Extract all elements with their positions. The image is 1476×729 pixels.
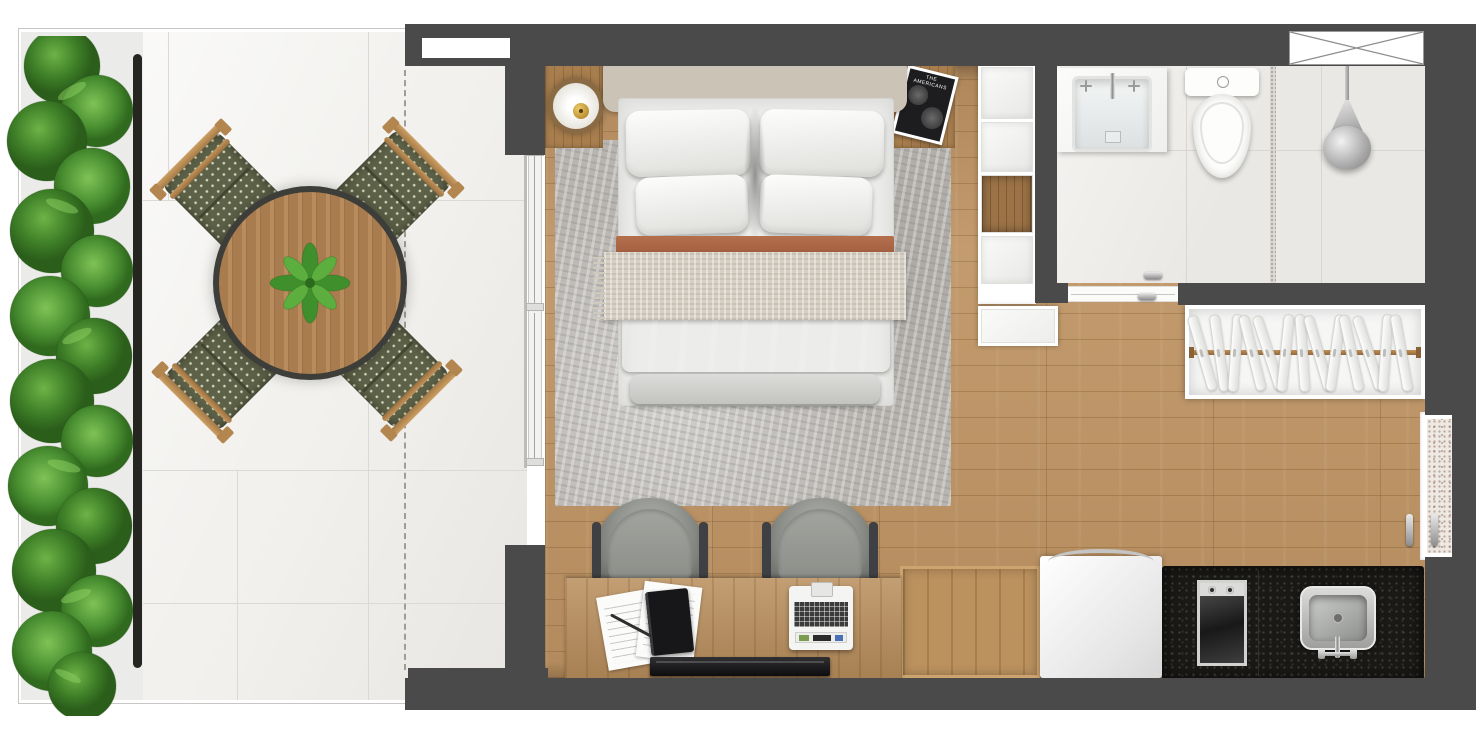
refrigerator bbox=[1040, 556, 1162, 678]
keyboard-latch bbox=[811, 582, 833, 597]
lamp-finial bbox=[579, 109, 583, 113]
bathroom-bottom-wall bbox=[1178, 283, 1425, 305]
label-chip bbox=[813, 635, 831, 641]
keyboard-keys bbox=[794, 602, 848, 627]
bathroom-door-jamb bbox=[1035, 283, 1068, 303]
hanger bbox=[1389, 314, 1413, 393]
flush-button bbox=[1217, 76, 1229, 88]
shelving-unit bbox=[978, 64, 1036, 304]
cooktop-panel bbox=[1200, 583, 1244, 596]
shower-head bbox=[1323, 126, 1371, 170]
pillow bbox=[759, 174, 873, 236]
wall-stub-bottom bbox=[505, 545, 545, 685]
door-connector bbox=[526, 303, 544, 311]
mosaic-strip bbox=[1270, 66, 1276, 283]
sink-faucet bbox=[1110, 73, 1115, 99]
sliding-glass-panel bbox=[528, 152, 542, 306]
shelf-cell-wide bbox=[978, 306, 1058, 346]
tile-line bbox=[143, 603, 527, 604]
closet-hangers bbox=[1185, 305, 1425, 399]
desk-chair bbox=[595, 498, 705, 586]
door-handle bbox=[1144, 272, 1162, 279]
bathroom-sliding-door bbox=[1066, 286, 1180, 302]
terracotta-blanket bbox=[622, 320, 890, 372]
tile-line bbox=[1321, 66, 1322, 283]
entry-upper-wall bbox=[1425, 66, 1454, 415]
tile-line bbox=[1186, 66, 1187, 283]
tile-line bbox=[143, 470, 527, 471]
chair-armrest bbox=[762, 522, 771, 580]
glass-line bbox=[534, 155, 535, 303]
chair-armrest bbox=[699, 522, 708, 580]
label-chip bbox=[835, 635, 843, 641]
shelf-cell-inner bbox=[981, 309, 1055, 343]
shelf-cell-white bbox=[981, 236, 1033, 284]
x-lines bbox=[1289, 31, 1424, 65]
shelf-cell-white bbox=[981, 67, 1033, 119]
door-handle bbox=[1138, 293, 1156, 300]
sliding-glass-panel bbox=[528, 310, 542, 462]
faucet-handle bbox=[1350, 648, 1357, 659]
notebook bbox=[645, 588, 694, 656]
portable-keyboard bbox=[789, 586, 853, 650]
chair-armrest bbox=[869, 522, 878, 580]
tv bbox=[650, 657, 830, 676]
wall-stub-top bbox=[505, 66, 545, 155]
cooktop-knob bbox=[1226, 586, 1234, 594]
door-connector bbox=[526, 458, 544, 466]
entry-door-handle bbox=[1406, 514, 1413, 546]
cream-throw-blanket bbox=[604, 252, 906, 320]
duct-shaft-marker bbox=[1289, 31, 1424, 65]
sink-drain bbox=[1332, 612, 1344, 624]
bottom-wall bbox=[405, 678, 1476, 710]
bathroom-left-wall bbox=[1035, 66, 1057, 288]
faucet-handle bbox=[1318, 648, 1325, 659]
label-chip bbox=[799, 635, 809, 641]
wall-corner-bottom-left bbox=[408, 668, 548, 710]
sink-drain bbox=[1105, 131, 1121, 143]
closet bbox=[1185, 305, 1425, 399]
cooktop bbox=[1197, 580, 1247, 666]
tile-line bbox=[237, 470, 238, 700]
pillow bbox=[635, 174, 749, 236]
door-panel-line bbox=[1071, 294, 1175, 295]
glass-line bbox=[534, 313, 535, 459]
faucet-handle bbox=[1080, 80, 1092, 92]
faucet-crossbar bbox=[1322, 652, 1353, 656]
cooktop-knob bbox=[1208, 586, 1216, 594]
shelf-cell-white bbox=[981, 122, 1033, 172]
faucet-handle bbox=[1128, 80, 1140, 92]
right-wall bbox=[1452, 24, 1476, 710]
magazine-art bbox=[919, 105, 946, 132]
pillow-gap-shadow bbox=[744, 106, 766, 242]
table-plant bbox=[262, 235, 358, 331]
pillow bbox=[625, 109, 750, 177]
kitchen-cabinet bbox=[900, 566, 1040, 678]
shelf-cell-wood bbox=[981, 175, 1033, 233]
window-marker bbox=[422, 38, 510, 58]
hedge-plants bbox=[2, 36, 152, 716]
counter-seam bbox=[1258, 570, 1259, 676]
floor-plan: THE AMERICANS bbox=[0, 0, 1476, 729]
toilet-seat bbox=[1200, 102, 1244, 164]
chair-armrest bbox=[592, 522, 601, 580]
table-lamp bbox=[548, 78, 604, 134]
entry-door-handle bbox=[1431, 514, 1438, 546]
lamp-shade bbox=[553, 83, 599, 129]
toilet-tank bbox=[1185, 68, 1259, 96]
foot-bench bbox=[630, 374, 880, 404]
hanger bbox=[1276, 314, 1295, 393]
pillow bbox=[759, 109, 884, 177]
desk-chair bbox=[765, 498, 875, 586]
lamp-brass-center bbox=[573, 103, 589, 119]
entry-lower-wall bbox=[1425, 557, 1454, 678]
keyboard-label-strip bbox=[795, 632, 847, 643]
